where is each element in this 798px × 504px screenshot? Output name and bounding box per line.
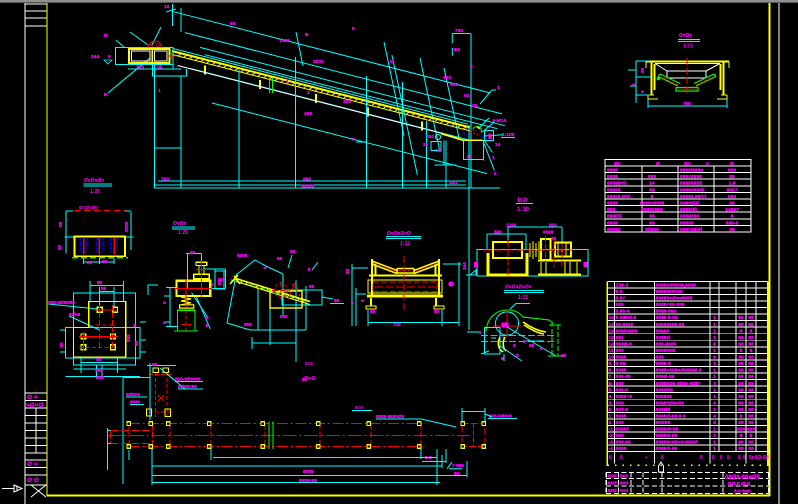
svg-text:244: 244: [91, 54, 99, 60]
svg-text:8888: 8888: [616, 355, 627, 361]
svg-text:1:15: 1:15: [518, 295, 528, 301]
svg-text:700: 700: [136, 65, 144, 71]
svg-text:88: 88: [434, 309, 440, 314]
svg-text:25: 25: [157, 65, 163, 71]
svg-text:88: 88: [738, 315, 744, 321]
svg-text:8: 8: [479, 330, 482, 335]
svg-text:M: M: [205, 315, 209, 320]
svg-text:300: 300: [426, 134, 434, 140]
svg-text:8: 8: [700, 455, 703, 461]
svg-text:244: 244: [462, 262, 467, 270]
svg-text:0: 0: [609, 420, 612, 426]
svg-text:88: 88: [345, 268, 350, 274]
svg-text:888-8: 888-8: [616, 387, 629, 393]
svg-text:88Ø: 88Ø: [608, 480, 617, 486]
svg-text:888: 888: [616, 400, 624, 406]
svg-text:Ø ¤: Ø ¤: [27, 461, 38, 468]
svg-text:1: 1: [713, 322, 716, 328]
svg-text:1: 1: [713, 446, 716, 452]
svg-text:888: 888: [244, 322, 252, 327]
svg-text:88: 88: [738, 361, 744, 367]
svg-text:882: 882: [616, 335, 624, 341]
svg-text:7·888: 7·888: [452, 463, 464, 468]
svg-text:885: 885: [126, 334, 131, 342]
svg-text:88: 88: [738, 387, 744, 393]
svg-text:14: 14: [649, 181, 655, 187]
svg-text:25: 25: [467, 154, 473, 160]
svg-text:88: 88: [101, 286, 107, 291]
svg-text:10: 10: [609, 355, 615, 361]
svg-text:888-8Ø88Ø8: 888-8Ø88Ø8: [48, 300, 75, 305]
svg-text:888: 888: [747, 427, 755, 433]
svg-text:8: 8: [523, 339, 526, 344]
svg-text:888-8888: 888-8888: [656, 341, 677, 347]
svg-text:88: 88: [729, 227, 735, 233]
svg-text:14: 14: [495, 142, 501, 148]
svg-text:7: 7: [713, 381, 716, 387]
svg-text:8 ¤ 8ø8: 8 ¤ 8ø8: [734, 489, 751, 495]
svg-text:8: 8: [661, 455, 664, 461]
svg-text:888Ø-88: 888Ø-88: [656, 374, 675, 380]
svg-text:1.8: 1.8: [729, 181, 736, 187]
svg-text:88: 88: [134, 340, 139, 346]
svg-text:885: 885: [303, 177, 311, 183]
svg-text:8: 8: [720, 455, 723, 461]
svg-text:8888: 8888: [303, 469, 314, 474]
svg-text:Ø¤Ø¤: Ø¤Ø¤: [679, 33, 693, 39]
svg-text:88888888-88: 88888888-88: [656, 322, 685, 328]
svg-text:88: 88: [738, 355, 744, 361]
svg-text:88888: 88888: [607, 227, 621, 233]
svg-text:8: 8: [731, 214, 734, 220]
svg-text:88: 88: [334, 298, 340, 303]
svg-text:8: 8: [640, 90, 645, 93]
svg-text:8888: 8888: [607, 201, 618, 207]
svg-text:88: 88: [738, 394, 744, 400]
svg-text:88888: 88888: [645, 227, 659, 233]
svg-text:8: 8: [740, 414, 743, 420]
svg-text:588: 588: [616, 302, 624, 308]
svg-text:8: 8: [620, 455, 623, 461]
svg-text:88: 88: [748, 381, 754, 387]
svg-text:8: 8: [352, 26, 355, 32]
svg-text:-4: -4: [609, 446, 614, 452]
svg-text:8888: 8888: [616, 446, 627, 452]
svg-text:25: 25: [436, 148, 442, 154]
svg-text:8Ø 8 Ø-8: 8Ø 8 Ø-8: [728, 482, 750, 488]
svg-text:88: 88: [649, 187, 655, 193]
svg-text:888: 888: [494, 230, 502, 235]
svg-text:608: 608: [450, 82, 458, 88]
svg-text:8888Ø-88 8 8: 8888Ø-88 8 8: [656, 414, 686, 420]
svg-text:888888Ø: 888888Ø: [656, 348, 676, 354]
svg-text:888: 888: [280, 314, 288, 319]
svg-text:2000: 2000: [313, 59, 324, 65]
svg-text:88888888: 88888888: [641, 207, 663, 213]
svg-text:8888¤8888: 8888¤8888: [640, 201, 665, 207]
svg-text:8: 8: [713, 355, 716, 361]
svg-text:8Ø8¤8: 8Ø8¤8: [126, 392, 140, 397]
svg-text:888-8: 888-8: [616, 407, 629, 413]
svg-text:8888: 8888: [543, 230, 554, 235]
svg-text:8: 8: [350, 301, 355, 304]
svg-text:88: 88: [748, 322, 754, 328]
svg-text:8888: 8888: [616, 368, 627, 374]
svg-text:2: 2: [307, 90, 310, 96]
svg-text:88: 88: [738, 381, 744, 387]
svg-text:8888Ø-88: 8888Ø-88: [656, 433, 678, 439]
svg-text:88888888: 88888888: [616, 328, 638, 334]
svg-text:88: 88: [561, 353, 567, 358]
svg-text:+: +: [645, 455, 648, 461]
svg-text:-3: -3: [609, 440, 614, 446]
svg-text:8: 8: [631, 83, 636, 86]
svg-text:1: 1: [713, 348, 716, 354]
svg-text:888: 888: [648, 174, 656, 180]
svg-text:Ø¤Ø¤Ø¤: Ø¤Ø¤Ø¤: [84, 178, 104, 184]
svg-text:8: 8: [651, 194, 654, 200]
svg-text:8888(¤8): 8888(¤8): [607, 181, 627, 187]
svg-text:M: M: [390, 59, 394, 65]
svg-text:5: 5: [609, 387, 612, 393]
svg-text:888-8: 888-8: [726, 220, 739, 226]
svg-text:8M: 8M: [454, 47, 461, 53]
svg-text:884: 884: [549, 223, 557, 228]
svg-text:25: 25: [423, 142, 429, 148]
svg-text:1: 1: [497, 85, 500, 91]
svg-text:88: 88: [152, 362, 158, 367]
svg-text:88: 88: [748, 420, 754, 426]
svg-text:88: 88: [748, 440, 754, 446]
svg-text:30000: 30000: [301, 184, 315, 190]
svg-text:700: 700: [161, 177, 169, 183]
svg-text:88: 88: [59, 342, 64, 348]
svg-text:8: 8: [738, 455, 741, 461]
svg-text:88888×88×8×888Ø: 88888×88×8×888Ø: [656, 440, 698, 446]
svg-text:8888: 8888: [616, 414, 627, 420]
svg-text:8: 8: [513, 343, 516, 348]
svg-text:8: 8: [713, 341, 716, 347]
svg-text:8888888: 8888888: [680, 214, 699, 220]
svg-text:8: 8: [727, 455, 730, 461]
svg-text:11: 11: [609, 348, 614, 354]
svg-text:8888×8: 8888×8: [616, 394, 633, 400]
svg-text:08Ø8-88øØ5: 08Ø8-88øØ5: [725, 475, 761, 481]
svg-text:88: 88: [738, 322, 744, 328]
svg-text:Ø¤Ø: Ø¤Ø: [304, 376, 315, 382]
svg-text:1: 1: [713, 335, 716, 341]
svg-text:888-8Ø8¤88: 888-8Ø8¤88: [175, 377, 201, 382]
svg-text:13: 13: [609, 335, 615, 341]
svg-text:8888-8: 8888-8: [656, 361, 672, 367]
svg-text:888888: 888888: [656, 394, 673, 400]
svg-text:700: 700: [393, 322, 401, 327]
svg-text:Ø¤: Ø¤: [684, 161, 691, 167]
svg-text:888888(8): 888888(8): [680, 181, 703, 187]
svg-text:88: 88: [738, 440, 744, 446]
svg-text:8888: 8888: [607, 168, 618, 174]
svg-text:4-M16: 4-M16: [492, 118, 506, 124]
svg-text:88: 88: [738, 420, 744, 426]
svg-text:1: 1: [713, 427, 716, 433]
svg-text:88: 88: [738, 446, 744, 452]
svg-text:1: 1: [609, 414, 612, 420]
svg-text:88: 88: [748, 414, 754, 420]
svg-text:1: 1: [713, 433, 716, 439]
svg-text:88Ø: 88Ø: [608, 488, 617, 494]
svg-text:88: 88: [748, 361, 754, 367]
svg-text:Ø: Ø: [730, 161, 734, 167]
svg-text:8-88: 8-88: [616, 361, 626, 367]
svg-text:88Ø88: 88Ø88: [656, 420, 671, 426]
svg-text:88: 88: [748, 341, 754, 347]
svg-text:8888: 8888: [124, 221, 129, 232]
svg-text:9: 9: [609, 361, 612, 367]
svg-text:88: 88: [551, 236, 557, 241]
svg-text:888¤: 888¤: [130, 400, 141, 405]
svg-text:888: 888: [616, 381, 624, 387]
svg-text:8¤8Ø: 8¤8Ø: [749, 455, 761, 461]
svg-text:888-8Ø8¤8: 888-8Ø8¤8: [489, 414, 512, 419]
svg-text:1: 1: [713, 440, 716, 446]
svg-text:¤: ¤: [706, 161, 709, 167]
svg-text:8Ø88: 8Ø88: [69, 312, 81, 317]
svg-text:88: 88: [309, 284, 315, 289]
svg-text:8: 8: [750, 433, 753, 439]
svg-text:88888Ø8888,8888: 88888Ø8888,8888: [656, 283, 697, 289]
svg-text:8888: 8888: [607, 174, 618, 180]
svg-text:300: 300: [343, 99, 351, 105]
svg-text:4: 4: [713, 414, 716, 420]
svg-text:888: 888: [616, 433, 624, 439]
svg-text:60: 60: [464, 93, 470, 99]
svg-text:88: 88: [190, 250, 196, 255]
svg-text:888¤8888: 888¤8888: [680, 174, 702, 180]
svg-text:1: 1: [713, 361, 716, 367]
svg-text:888-88: 888-88: [616, 440, 632, 446]
svg-text:88888Ø8 888ø-8887: 88888Ø8 888ø-8887: [656, 381, 701, 387]
svg-text:88: 88: [217, 279, 222, 285]
svg-text:8-888Ø-8: 8-888Ø-8: [616, 315, 637, 321]
svg-text:1: 1: [286, 79, 289, 85]
svg-text:8888×888¤Ø88888.8: 8888×888¤Ø88888.8: [656, 368, 702, 374]
svg-text:8888|888ø: 8888|888ø: [680, 168, 703, 174]
svg-text:R: R: [104, 33, 108, 39]
svg-text:Ø ¤: Ø ¤: [27, 394, 38, 401]
svg-text:888: 888: [96, 375, 104, 380]
svg-text:1: 1: [713, 315, 716, 321]
svg-text:88: 88: [729, 174, 735, 180]
svg-text:¤Ø¤Ø: ¤Ø¤Ø: [26, 402, 43, 409]
svg-text:8-8: 8-8: [616, 289, 623, 295]
svg-text:888Ø88: 888Ø88: [656, 387, 674, 393]
svg-text:1: 1: [713, 368, 716, 374]
svg-text:888-88: 888-88: [616, 374, 632, 380]
svg-text:25: 25: [472, 103, 478, 109]
svg-text:1:15: 1:15: [683, 44, 693, 50]
svg-text:8: 8: [162, 321, 167, 324]
svg-text:1264: 1264: [506, 223, 517, 228]
svg-text:88888.8(8): 88888.8(8): [607, 194, 631, 200]
svg-text:88: 88: [102, 259, 108, 264]
svg-text:1: 1: [713, 407, 716, 413]
svg-text:8887: 8887: [727, 187, 738, 193]
svg-text:408: 408: [304, 111, 312, 117]
svg-text:88888.88(¤): 88888.88(¤): [680, 194, 707, 200]
svg-text:8: 8: [766, 455, 769, 461]
svg-text:88: 88: [748, 387, 754, 393]
svg-text:8¤0: 8¤0: [620, 474, 628, 480]
svg-text:88: 88: [748, 407, 754, 413]
svg-text:88Ø: 88Ø: [608, 474, 617, 480]
svg-text:888: 888: [95, 368, 103, 373]
svg-text:8=8: 8=8: [305, 361, 313, 366]
svg-text:8¤0: 8¤0: [620, 480, 628, 486]
svg-text:8888 8-84: 8888 8-84: [656, 315, 678, 321]
svg-text:7: 7: [352, 137, 355, 143]
svg-text:8: 8: [712, 455, 715, 461]
svg-text:888: 888: [728, 168, 736, 174]
svg-text:8: 8: [740, 328, 743, 334]
svg-text:888: 888: [607, 207, 615, 213]
svg-text:88: 88: [748, 394, 754, 400]
svg-text:88: 88: [290, 249, 296, 254]
svg-text:888(8): 888(8): [607, 214, 622, 220]
svg-text:1:15: 1:15: [400, 241, 410, 247]
svg-text:788: 788: [683, 101, 691, 106]
svg-text:1468: 1468: [279, 38, 290, 44]
svg-text:88: 88: [87, 260, 93, 265]
svg-text:8: 8: [206, 323, 209, 328]
svg-text:888: 888: [737, 427, 745, 433]
svg-text:88888¤Ø¤ø8888: 88888¤Ø¤ø8888: [656, 296, 693, 302]
svg-text:88888: 88888: [680, 220, 694, 226]
svg-text:80: 80: [57, 244, 62, 250]
svg-text:16: 16: [609, 315, 615, 321]
svg-text:888: 888: [728, 194, 736, 200]
svg-text:88: 88: [729, 201, 735, 207]
svg-text:8888Ø-88: 8888Ø-88: [656, 446, 678, 452]
svg-text:8888-888¤Ø8: 8888-888¤Ø8: [376, 414, 405, 419]
svg-text:88: 88: [748, 368, 754, 374]
svg-text:8.88-4: 8.88-4: [616, 309, 630, 315]
svg-text:88: 88: [748, 374, 754, 380]
svg-text:888Ø-8: 888Ø-8: [616, 341, 633, 347]
svg-text:8.8Y: 8.8Y: [616, 296, 627, 302]
svg-text:3: 3: [609, 400, 612, 406]
svg-text:1: 1: [713, 328, 716, 334]
svg-text:88: 88: [748, 355, 754, 361]
svg-text:88: 88: [738, 374, 744, 380]
svg-text:8: 8: [211, 282, 214, 287]
svg-text:88888(8): 88888(8): [680, 201, 700, 207]
svg-text:8888: 8888: [237, 253, 248, 258]
svg-text:888: 888: [656, 355, 664, 361]
svg-text:88: 88: [738, 400, 744, 406]
svg-text:8: 8: [740, 348, 743, 354]
svg-text:7: 7: [609, 374, 612, 380]
svg-text:1:25: 1:25: [90, 189, 100, 195]
svg-text:8¤0: 8¤0: [620, 488, 628, 494]
svg-text:-1: -1: [609, 427, 614, 433]
svg-text:8888: 8888: [607, 220, 618, 226]
svg-text:88: 88: [738, 407, 744, 413]
svg-text:1:25: 1:25: [178, 230, 188, 236]
svg-text:8: 8: [750, 348, 753, 354]
svg-text:8: 8: [750, 328, 753, 334]
svg-text:8: 8: [740, 433, 743, 439]
svg-text:88885: 88885: [616, 427, 630, 433]
svg-text:88: 88: [370, 309, 376, 314]
svg-text:8Ø88¤88: 8Ø88¤88: [178, 384, 197, 389]
svg-text:4: 4: [609, 394, 612, 400]
svg-text:88: 88: [649, 220, 655, 226]
svg-text:B: B: [305, 32, 309, 38]
svg-text:88: 88: [748, 315, 754, 321]
svg-text:1: 1: [713, 374, 716, 380]
svg-text:8: 8: [540, 346, 543, 351]
svg-text:1: 1: [713, 387, 716, 393]
svg-text:B: B: [104, 92, 108, 98]
svg-text:8: 8: [308, 267, 311, 272]
svg-text:10: 10: [164, 4, 170, 10]
svg-text:1: 1: [713, 394, 716, 400]
svg-text:12: 12: [609, 341, 615, 347]
svg-text:700: 700: [455, 28, 463, 34]
svg-text:8=8: 8=8: [355, 405, 363, 410]
svg-text:14887: 14887: [725, 207, 739, 213]
svg-text:8: 8: [609, 455, 612, 461]
svg-text:8: 8: [609, 368, 612, 374]
svg-text:88: 88: [277, 256, 283, 261]
svg-text:88: 88: [738, 335, 744, 341]
svg-text:8: 8: [360, 299, 365, 302]
svg-text:88: 88: [529, 343, 535, 348]
svg-text:88888: 88888: [656, 328, 670, 334]
svg-text:88888Ø8¤88: 88888Ø8¤88: [656, 400, 685, 406]
svg-text:4: 4: [713, 400, 716, 406]
svg-text:8: 8: [162, 301, 167, 304]
svg-text:500: 500: [449, 180, 457, 186]
svg-text:88: 88: [738, 368, 744, 374]
svg-text:88: 88: [97, 280, 103, 285]
svg-text:88: 88: [640, 67, 645, 73]
svg-text:14: 14: [609, 328, 615, 334]
svg-text:Ø¤: Ø¤: [614, 161, 621, 167]
svg-text:Z88-3: Z88-3: [616, 283, 629, 289]
svg-text:888: 888: [616, 420, 624, 426]
svg-text:1: 1: [158, 88, 161, 94]
svg-text:8888Ø: 8888Ø: [656, 335, 671, 341]
svg-text:Ø: Ø: [656, 161, 660, 167]
svg-text:Ø Ø: Ø Ø: [27, 477, 39, 484]
svg-text:8888(8): 8888(8): [680, 207, 697, 213]
svg-text:8: 8: [108, 54, 111, 60]
svg-text:888: 888: [616, 348, 624, 354]
svg-text:6: 6: [609, 381, 612, 387]
svg-text:88: 88: [96, 357, 102, 362]
svg-text:-2: -2: [609, 433, 614, 439]
svg-text:88: 88: [748, 400, 754, 406]
svg-text:88: 88: [738, 341, 744, 347]
svg-text:88: 88: [748, 335, 754, 341]
svg-text:8888-88ø: 8888-88ø: [656, 309, 677, 315]
svg-text:8: 8: [516, 353, 519, 358]
svg-text:1:30: 1:30: [517, 207, 530, 213]
svg-text:2: 2: [494, 171, 497, 177]
svg-text:888Ø8: 888Ø8: [656, 407, 671, 413]
svg-text:8888Ø×88: 8888Ø×88: [656, 427, 679, 433]
